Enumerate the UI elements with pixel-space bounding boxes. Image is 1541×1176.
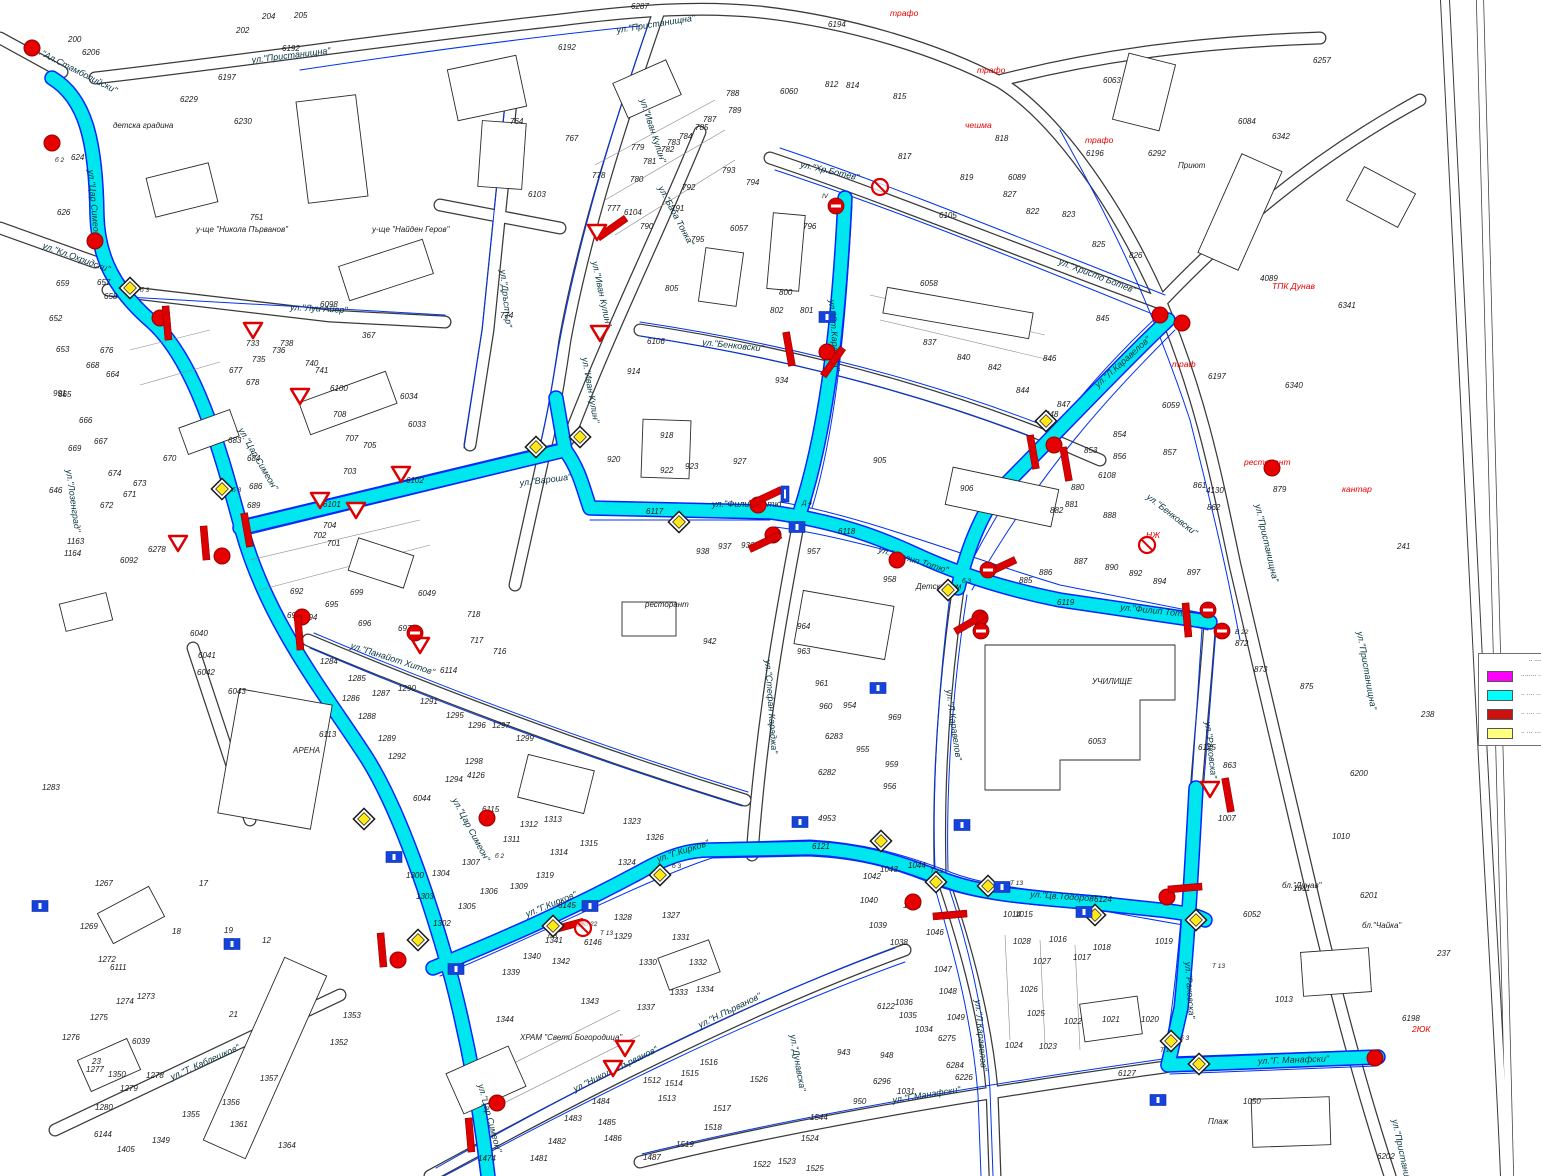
parcel-number: 677	[229, 366, 243, 375]
parcel-number: 689	[247, 501, 261, 510]
hydrant-symbol	[905, 894, 921, 910]
parcel-number: 667	[94, 437, 108, 446]
parcel-number: 819	[960, 173, 974, 182]
parcel-number: 1276	[62, 1033, 80, 1042]
parcel-number: 805	[665, 284, 679, 293]
parcel-number: 1017	[1073, 953, 1091, 962]
closure-symbol	[377, 933, 387, 967]
parcel-number: 823	[1062, 210, 1076, 219]
parcel-number: 1013	[1275, 995, 1293, 1004]
parcel-number: 827	[1003, 190, 1017, 199]
poi-label: чешма	[965, 120, 992, 130]
parcel-number: 1481	[530, 1154, 548, 1163]
parcel-number: 1523	[778, 1157, 796, 1166]
parcel-number: 1482	[548, 1137, 566, 1146]
legend-item-label: ········ ·····	[1521, 673, 1541, 680]
parcel-number: 787	[703, 115, 717, 124]
parcel-number: 1021	[1102, 1015, 1120, 1024]
parcel-number: 1287	[372, 689, 390, 698]
parcel-number: 1485	[598, 1118, 616, 1127]
parcel-number: 738	[280, 339, 294, 348]
parcel-number: 1331	[672, 933, 690, 942]
parcel-number: 1513	[658, 1094, 676, 1103]
parcel-number: 791	[671, 204, 684, 213]
parcel-number: 200	[67, 35, 82, 44]
parcel-number: 861	[1193, 481, 1206, 490]
yield-symbol	[347, 503, 365, 518]
parcel-number: 1516	[700, 1058, 718, 1067]
info-symbol	[224, 939, 240, 950]
noentry-symbol	[1214, 623, 1230, 639]
parcel-number: 6043	[228, 687, 246, 696]
parcel-number: 6194	[828, 20, 846, 29]
parcel-number: 1522	[753, 1160, 771, 1169]
parcel-number: 705	[363, 441, 377, 450]
parcel-number: 6229	[180, 95, 198, 104]
parcel-number: 4126	[467, 771, 485, 780]
parcel-number: 778	[592, 171, 606, 180]
parcel-number: 920	[607, 455, 621, 464]
info-symbol	[819, 312, 835, 323]
parcel-number: 1315	[580, 839, 598, 848]
map-legend: ·· ····· ······ ········ ······· ···· ··…	[1478, 653, 1541, 746]
parcel-number: 4953	[818, 814, 836, 823]
sign-code-label: б 3	[962, 577, 971, 585]
street-name-label: ул."Пристанищна"	[1355, 630, 1379, 712]
parcel-number: 6089	[1008, 173, 1026, 182]
poi-label: кантар	[1342, 484, 1372, 494]
parcel-number: 6124	[1094, 895, 1112, 904]
parcel-number: 1273	[137, 992, 155, 1001]
parcel-number: 1272	[98, 955, 116, 964]
parcel-number: 626	[57, 208, 71, 217]
noparking-symbol	[872, 179, 888, 195]
parcel-number: 6101	[323, 500, 341, 509]
parcel-number: 1313	[544, 815, 562, 824]
diamond-symbol	[407, 929, 428, 950]
parcel-number: 1483	[564, 1114, 582, 1123]
parcel-number: 6226	[955, 1073, 973, 1082]
parcel-number: 6284	[946, 1061, 964, 1070]
parcel-number: 6111	[110, 963, 127, 972]
parcel-number: 1324	[618, 858, 636, 867]
parcel-number: 1329	[614, 932, 632, 941]
parcel-number: 826	[1129, 251, 1143, 260]
parcel-number: 844	[1016, 386, 1030, 395]
poi-label: трафо	[890, 8, 919, 18]
parcel-number: 774	[500, 311, 514, 320]
parcel-number: 658	[104, 292, 118, 301]
parcel-number: 812	[825, 80, 839, 89]
parcel-number: 837	[923, 338, 937, 347]
parcel-number: 1340	[523, 952, 541, 961]
parcel-number: 1349	[152, 1136, 170, 1145]
parcel-number: 822	[1026, 207, 1040, 216]
hydrant-symbol	[489, 1095, 505, 1111]
closure-symbol	[200, 526, 210, 560]
parcel-number: 6057	[730, 224, 748, 233]
parcel-number: 1016	[1049, 935, 1067, 944]
parcel-number: 1309	[510, 882, 528, 891]
parcel-number: 6121	[812, 842, 830, 851]
parcel-number: 6144	[94, 1130, 112, 1139]
hydrant-symbol	[1264, 460, 1280, 476]
parcel-number: 1018	[1093, 943, 1111, 952]
parcel-number: 905	[873, 456, 887, 465]
parcel-number: 1525	[806, 1164, 824, 1173]
parcel-number: 1040	[860, 896, 878, 905]
parcel-number: 6108	[1098, 471, 1116, 480]
parcel-number: 1299	[516, 734, 534, 743]
parcel-number: 696	[358, 619, 372, 628]
parcel-number: 1544	[810, 1113, 828, 1122]
parcel-number: 668	[86, 361, 100, 370]
parcel-number: 815	[893, 92, 907, 101]
poi-label: у-ще "Найден Геров"	[371, 225, 451, 234]
parcel-number: 666	[79, 416, 93, 425]
poi-label: бл."Дунав"	[1282, 881, 1323, 890]
parcel-number: 840	[957, 353, 971, 362]
parcel-number: 6287	[631, 2, 649, 11]
parcel-number: 1014	[1003, 910, 1021, 919]
parcel-number: 957	[807, 547, 821, 556]
parcel-number: 23	[91, 1057, 101, 1066]
legend-swatch	[1487, 728, 1513, 739]
parcel-number: 800	[779, 288, 793, 297]
parcel-number: 1484	[592, 1097, 610, 1106]
parcel-number: 703	[343, 467, 357, 476]
parcel-number: 875	[1300, 682, 1314, 691]
parcel-number: 1357	[260, 1074, 278, 1083]
parcel-number: 780	[630, 175, 644, 184]
parcel-number: 6104	[624, 208, 642, 217]
parcel-number: 1333	[670, 988, 688, 997]
parcel-number: 6052	[1243, 910, 1261, 919]
sign-code-label: б 2	[55, 156, 64, 164]
parcel-number: 1405	[117, 1145, 135, 1154]
parcel-number: 741	[315, 366, 328, 375]
parcel-number: 959	[885, 760, 899, 769]
parcel-number: 6125	[1198, 743, 1216, 752]
parcel-number: 1332	[689, 958, 707, 967]
parcel-number: 1049	[947, 1013, 965, 1022]
parcel-number: 1514	[665, 1079, 683, 1088]
parcel-number: 1487	[643, 1153, 661, 1162]
parcel-number: 1326	[646, 833, 664, 842]
parcel-number: 6283	[825, 732, 843, 741]
closure-symbol	[1222, 778, 1235, 813]
yield-symbol	[1201, 782, 1219, 797]
parcel-number: 914	[627, 367, 641, 376]
parcel-number: 6117	[646, 507, 664, 516]
parcel-number: 1022	[1064, 1017, 1082, 1026]
map-canvas[interactable]: ул."Ал.Стамболийски"ул."Пристанищна"ул."…	[0, 0, 1541, 1176]
parcel-number: 1039	[869, 921, 887, 930]
parcel-number: 854	[1113, 430, 1127, 439]
yield-symbol	[616, 1041, 634, 1056]
street-name-label: ул."Филип Тотю"	[711, 499, 785, 509]
noentry-symbol	[973, 623, 989, 639]
parcel-number: 1043	[880, 865, 898, 874]
parcel-number: 1277	[86, 1065, 104, 1074]
parcel-number: 879	[1273, 485, 1287, 494]
parcel-number: 6058	[920, 279, 938, 288]
parcel-number: 670	[163, 454, 177, 463]
parcel-number: 892	[1129, 569, 1143, 578]
parcel-number: 942	[703, 637, 717, 646]
sign-code-label: Т 13	[600, 930, 613, 937]
hydrant-symbol	[889, 552, 905, 568]
parcel-number: 6146	[584, 938, 602, 947]
hydrant-symbol	[24, 40, 40, 56]
parcel-number: 699	[350, 588, 364, 597]
parcel-number: 205	[293, 11, 308, 20]
street-name-label: ул."Иван Кулин"	[590, 259, 614, 328]
parcel-number: 1289	[378, 734, 396, 743]
parcel-number: 6200	[1350, 769, 1368, 778]
poi-label: детска градина	[113, 121, 174, 130]
parcel-number: 686	[249, 482, 263, 491]
parcel-number: 733	[246, 339, 260, 348]
parcel-number: 1285	[348, 674, 366, 683]
parcel-number: 802	[770, 306, 784, 315]
parcel-number: 6192	[282, 44, 300, 53]
parcel-number: 1034	[915, 1025, 933, 1034]
parcel-number: 1312	[520, 820, 538, 829]
infov-symbol	[781, 486, 789, 502]
parcel-number: 717	[470, 636, 484, 645]
parcel-number: 894	[1153, 577, 1167, 586]
poi-label: траф	[1172, 359, 1196, 369]
parcel-number: 1269	[80, 922, 98, 931]
parcel-number: 934	[775, 376, 789, 385]
hydrant-symbol	[87, 233, 103, 249]
parcel-number: 1295	[446, 711, 464, 720]
parcel-number: 888	[1103, 511, 1117, 520]
parcel-number: 17	[199, 879, 208, 888]
parcel-number: 1036	[895, 998, 913, 1007]
parcel-number: 683	[228, 436, 242, 445]
parcel-number: 6102	[406, 476, 424, 485]
parcel-number: 1327	[662, 911, 680, 920]
parcel-number: 882	[1050, 506, 1064, 515]
hydrant-symbol	[44, 135, 60, 151]
parcel-number: 856	[1113, 452, 1127, 461]
parcel-number: 1302	[433, 919, 451, 928]
hydrant-symbol	[1046, 437, 1062, 453]
parcel-number: 906	[960, 484, 974, 493]
parcel-number: 880	[1071, 483, 1085, 492]
parcel-number: 1028	[1013, 937, 1031, 946]
parcel-number: 1050	[1243, 1097, 1261, 1106]
poi-label: Приют	[1178, 161, 1206, 170]
parcel-number: 6103	[528, 190, 546, 199]
parcel-number: 1024	[1005, 1041, 1023, 1050]
parcel-number: 6039	[132, 1037, 150, 1046]
parcel-number: 1048	[939, 987, 957, 996]
sign-code-label: ІV	[822, 193, 829, 200]
parcel-number: 6340	[1285, 381, 1303, 390]
legend-title: ·· ····· ······	[1487, 658, 1541, 667]
parcel-number: 1047	[934, 965, 952, 974]
parcel-number: 19	[224, 926, 233, 935]
closure-symbol	[1182, 603, 1192, 637]
parcel-number: 624	[71, 153, 85, 162]
street-name-label: ул."Пристанищна"	[1253, 502, 1281, 583]
parcel-number: 955	[856, 745, 870, 754]
street-name-label: ул."Т. Каблешков"	[168, 1042, 242, 1082]
legend-item-label: ·· ···· ·····	[1521, 711, 1541, 718]
parcel-number: 846	[1043, 354, 1057, 363]
parcel-number: 6342	[1272, 132, 1290, 141]
info-symbol	[1150, 1095, 1166, 1106]
parcel-number: 1046	[926, 928, 944, 937]
parcel-number: 784	[679, 132, 693, 141]
parcel-number: 793	[722, 166, 736, 175]
parcel-number: 751	[250, 213, 263, 222]
parcel-number: 1350	[108, 1070, 126, 1079]
parcel-number: 6105	[939, 211, 957, 220]
parcel-number: 1275	[90, 1013, 108, 1022]
parcel-number: 923	[685, 462, 699, 471]
sign-code-label: В 22	[1235, 629, 1249, 636]
poi-label: бл."Чайка"	[1362, 921, 1402, 930]
parcel-number: 695	[325, 600, 339, 609]
parcel-number: 6202	[1377, 1152, 1395, 1161]
parcel-number: 863	[1223, 761, 1237, 770]
parcel-number: 963	[797, 647, 811, 656]
parcel-number: 918	[660, 431, 674, 440]
noparking-symbol	[1139, 537, 1155, 553]
legend-item: ·· ··· ····	[1487, 724, 1541, 743]
parcel-number: 897	[1187, 568, 1201, 577]
parcel-number: 1284	[320, 657, 338, 666]
legend-swatch	[1487, 690, 1513, 701]
parcel-number: 1311	[503, 835, 520, 844]
info-symbol	[870, 683, 886, 694]
parcel-number: 6106	[647, 337, 665, 346]
parcel-number: 1526	[750, 1075, 768, 1084]
parcel-number: 1512	[643, 1076, 661, 1085]
parcel-number: 1339	[502, 968, 520, 977]
poi-label: УЧИЛИЩЕ	[1091, 677, 1133, 686]
parcel-number: 1352	[330, 1038, 348, 1047]
parcel-number: 1319	[536, 871, 554, 880]
parcel-number: 671	[123, 490, 136, 499]
parcel-number: 6197	[218, 73, 236, 82]
parcel-number: 1305	[458, 902, 476, 911]
parcel-number: 6127	[1118, 1069, 1136, 1078]
parcel-number: 857	[1163, 448, 1177, 457]
info-symbol	[1076, 907, 1092, 918]
parcel-number: 886	[1039, 568, 1053, 577]
parcel-number: 6100	[330, 384, 348, 393]
parcel-number: 1353	[343, 1011, 361, 1020]
parcel-number: 1486	[604, 1134, 622, 1143]
parcel-number: 6230	[234, 117, 252, 126]
poi-label: у-ще "Никола Първанов"	[195, 225, 289, 234]
street-name-label: ул."Лозенград"	[64, 468, 83, 533]
parcel-number: 664	[106, 370, 120, 379]
parcel-number: 1323	[623, 817, 641, 826]
parcel-number: 764	[510, 117, 524, 126]
info-symbol	[792, 817, 808, 828]
poi-label: ХРАМ "Свети Богородица"	[519, 1033, 623, 1042]
parcel-number: 6122	[877, 1002, 895, 1011]
parcel-number: 708	[333, 410, 347, 419]
parcel-number: 6201	[1360, 891, 1378, 900]
parcel-number: 1303	[416, 892, 434, 901]
parcel-number: 781	[643, 157, 656, 166]
sign-code-label: Т 13	[1212, 963, 1225, 970]
street-name-label: ул."Христо Ботев"	[1056, 256, 1138, 295]
noentry-symbol	[1200, 602, 1216, 618]
parcel-number: 202	[235, 26, 250, 35]
parcel-number: 241	[1396, 542, 1410, 551]
parcel-number: 788	[726, 89, 740, 98]
noentry-symbol	[407, 625, 423, 641]
parcel-number: 862	[1207, 503, 1221, 512]
hydrant-symbol	[1152, 307, 1168, 323]
parcel-number: 657	[97, 278, 111, 287]
parcel-number: 937	[718, 542, 732, 551]
info-symbol	[32, 901, 48, 912]
parcel-number: 653	[56, 345, 70, 354]
parcel-number: 6145	[558, 901, 576, 910]
sign-code-label: б 2	[495, 852, 504, 860]
sign-code-label: б 3	[140, 286, 149, 294]
parcel-number: 1298	[465, 757, 483, 766]
parcel-number: 956	[883, 782, 897, 791]
parcel-number: 853	[1084, 446, 1098, 455]
parcel-number: 673	[133, 479, 147, 488]
parcel-number: 1515	[681, 1069, 699, 1078]
parcel-number: 6034	[400, 392, 418, 401]
parcel-number: 6040	[190, 629, 208, 638]
info-symbol	[954, 820, 970, 831]
parcel-number: 1334	[696, 985, 714, 994]
parcel-number: 669	[68, 444, 82, 453]
parcel-number: 1279	[120, 1084, 138, 1093]
parcel-number: 1283	[42, 783, 60, 792]
parcel-number: 1314	[550, 848, 568, 857]
hydrant-symbol	[390, 952, 406, 968]
parcel-number: 1042	[863, 872, 881, 881]
parcel-number: 652	[49, 314, 63, 323]
parcel-number: 1474	[478, 1154, 496, 1163]
noparking-symbol	[575, 920, 591, 936]
parcel-number: 707	[345, 434, 359, 443]
parcel-number: 1524	[801, 1134, 819, 1143]
parcel-number: 1294	[445, 775, 463, 784]
parcel-number: 1267	[95, 879, 113, 888]
parcel-number: 701	[327, 539, 340, 548]
city-cadastral-map: ул."Ал.Стамболийски"ул."Пристанищна"ул."…	[0, 0, 1541, 1176]
parcel-number: 6292	[1148, 149, 1166, 158]
parcel-number: 927	[733, 457, 747, 466]
parcel-number: 785	[695, 123, 709, 132]
parcel-number: 704	[323, 521, 337, 530]
parcel-number: 678	[246, 378, 260, 387]
parcel-number: 845	[1096, 314, 1110, 323]
parcel-number: 1026	[1020, 985, 1038, 994]
parcel-number: 960	[819, 702, 833, 711]
hydrant-symbol	[214, 548, 230, 564]
diamond-symbol	[353, 808, 374, 829]
parcel-number: 1274	[116, 997, 134, 1006]
parcel-number: 6098	[320, 300, 338, 309]
parcel-number: 794	[746, 178, 760, 187]
